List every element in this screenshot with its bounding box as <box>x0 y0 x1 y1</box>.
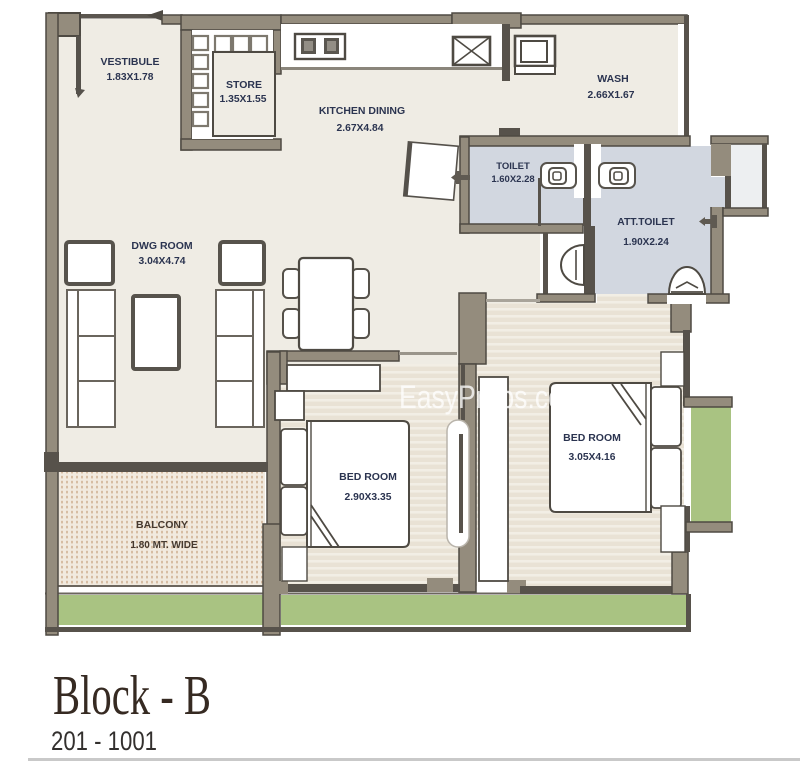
svg-text:2.67X4.84: 2.67X4.84 <box>337 123 384 134</box>
svg-text:BED ROOM: BED ROOM <box>563 432 621 444</box>
svg-text:1.35X1.55: 1.35X1.55 <box>220 94 267 105</box>
svg-text:TOILET: TOILET <box>496 161 530 172</box>
svg-text:2.90X3.35: 2.90X3.35 <box>345 492 392 503</box>
svg-text:DWG ROOM: DWG ROOM <box>131 240 192 252</box>
svg-text:BALCONY: BALCONY <box>136 519 188 531</box>
svg-text:STORE: STORE <box>226 79 262 91</box>
svg-text:1.80 MT. WIDE: 1.80 MT. WIDE <box>130 540 198 551</box>
svg-text:3.04X4.74: 3.04X4.74 <box>139 256 186 267</box>
svg-text:ATT.TOILET: ATT.TOILET <box>617 217 675 228</box>
svg-text:WASH: WASH <box>597 73 629 85</box>
svg-text:Block - B: Block - B <box>53 665 211 727</box>
svg-text:1.83X1.78: 1.83X1.78 <box>107 72 154 83</box>
svg-text:KITCHEN DINING: KITCHEN DINING <box>319 105 405 117</box>
svg-text:3.05X4.16: 3.05X4.16 <box>569 452 616 463</box>
svg-text:BED ROOM: BED ROOM <box>339 471 397 483</box>
svg-text:EasyProps.com: EasyProps.com <box>399 379 585 415</box>
svg-text:201 - 1001: 201 - 1001 <box>51 726 157 756</box>
svg-text:1.60X2.28: 1.60X2.28 <box>491 174 534 185</box>
svg-text:VESTIBULE: VESTIBULE <box>101 56 160 68</box>
svg-text:2.66X1.67: 2.66X1.67 <box>588 90 635 101</box>
svg-text:1.90X2.24: 1.90X2.24 <box>623 237 669 248</box>
